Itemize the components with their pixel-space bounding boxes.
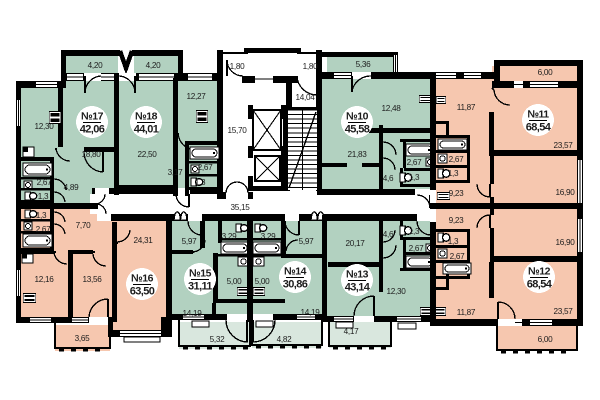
svg-text:1,3: 1,3 <box>448 237 459 246</box>
svg-text:23,57: 23,57 <box>554 141 574 150</box>
svg-text:5,32: 5,32 <box>210 335 225 344</box>
svg-text:6,00: 6,00 <box>538 335 553 344</box>
svg-text:6,00: 6,00 <box>538 68 553 77</box>
svg-text:11,87: 11,87 <box>457 103 476 112</box>
svg-text:4,6: 4,6 <box>383 174 394 183</box>
svg-text:16,90: 16,90 <box>556 188 576 197</box>
svg-text:1,3: 1,3 <box>36 211 47 220</box>
svg-text:2,67: 2,67 <box>36 225 51 234</box>
svg-text:12,48: 12,48 <box>382 104 402 113</box>
svg-text:№12: №12 <box>528 266 551 278</box>
svg-text:21,83: 21,83 <box>348 150 368 159</box>
svg-text:3,29: 3,29 <box>222 232 237 241</box>
svg-text:№11: №11 <box>527 109 549 121</box>
svg-text:12,27: 12,27 <box>187 92 207 101</box>
svg-text:1,3: 1,3 <box>448 169 459 178</box>
svg-text:2,67: 2,67 <box>407 158 422 167</box>
svg-text:7,70: 7,70 <box>76 221 91 230</box>
svg-text:3,65: 3,65 <box>75 334 90 343</box>
svg-text:4,17: 4,17 <box>344 327 359 336</box>
svg-text:18,80: 18,80 <box>82 150 102 159</box>
svg-text:4,6: 4,6 <box>383 230 394 239</box>
svg-text:11,87: 11,87 <box>457 308 476 317</box>
svg-text:4,20: 4,20 <box>88 61 103 70</box>
svg-text:5,97: 5,97 <box>299 237 314 246</box>
svg-text:5,00: 5,00 <box>227 277 242 286</box>
svg-text:№10: №10 <box>346 111 369 123</box>
svg-text:16,90: 16,90 <box>556 238 576 247</box>
svg-text:2,67: 2,67 <box>37 178 52 187</box>
svg-text:30,86: 30,86 <box>283 279 308 291</box>
svg-text:2,67: 2,67 <box>450 252 465 261</box>
svg-text:№15: №15 <box>189 268 212 280</box>
svg-text:31,11: 31,11 <box>188 281 212 293</box>
svg-text:№13: №13 <box>346 269 369 281</box>
svg-text:3,29: 3,29 <box>261 232 276 241</box>
svg-text:12,30: 12,30 <box>35 122 55 131</box>
svg-text:№14: №14 <box>284 266 307 278</box>
svg-text:68,54: 68,54 <box>527 279 553 291</box>
svg-text:5,00: 5,00 <box>255 277 270 286</box>
svg-text:23,57: 23,57 <box>554 307 574 316</box>
svg-text:35,15: 35,15 <box>231 203 251 212</box>
svg-text:№16: №16 <box>131 273 154 285</box>
svg-text:4,89: 4,89 <box>64 183 79 192</box>
svg-text:15,70: 15,70 <box>228 126 248 135</box>
svg-text:3,17: 3,17 <box>168 168 183 177</box>
svg-text:2,67: 2,67 <box>198 163 213 172</box>
svg-text:1,3: 1,3 <box>409 227 420 236</box>
svg-text:4,20: 4,20 <box>146 61 161 70</box>
svg-text:4,82: 4,82 <box>277 335 292 344</box>
svg-text:14,19: 14,19 <box>301 308 321 317</box>
svg-text:12,30: 12,30 <box>387 287 407 296</box>
svg-text:42,06: 42,06 <box>80 124 105 136</box>
svg-text:1,80: 1,80 <box>230 62 245 71</box>
svg-text:13,56: 13,56 <box>83 275 103 284</box>
svg-text:63,50: 63,50 <box>130 286 155 298</box>
svg-text:68,54: 68,54 <box>526 122 552 134</box>
svg-text:№17: №17 <box>81 111 104 123</box>
svg-text:1,3: 1,3 <box>409 173 420 182</box>
svg-text:14,04: 14,04 <box>296 93 316 102</box>
svg-text:44,01: 44,01 <box>134 124 159 136</box>
svg-text:5,97: 5,97 <box>182 237 197 246</box>
svg-text:45,58: 45,58 <box>345 124 370 136</box>
svg-text:12,16: 12,16 <box>35 275 55 284</box>
svg-text:5,36: 5,36 <box>356 60 371 69</box>
svg-text:2,67: 2,67 <box>409 244 424 253</box>
svg-text:9,23: 9,23 <box>449 216 464 225</box>
svg-text:2,67: 2,67 <box>449 155 464 164</box>
svg-text:1,3: 1,3 <box>195 178 206 187</box>
svg-text:20,17: 20,17 <box>346 239 366 248</box>
svg-text:22,50: 22,50 <box>138 150 158 159</box>
svg-text:1,3: 1,3 <box>38 192 49 201</box>
svg-text:43,14: 43,14 <box>345 282 371 294</box>
svg-text:24,31: 24,31 <box>134 236 154 245</box>
svg-text:№18: №18 <box>135 111 158 123</box>
svg-text:1,80: 1,80 <box>303 62 318 71</box>
svg-text:9,23: 9,23 <box>449 189 464 198</box>
svg-text:14,19: 14,19 <box>183 309 203 318</box>
